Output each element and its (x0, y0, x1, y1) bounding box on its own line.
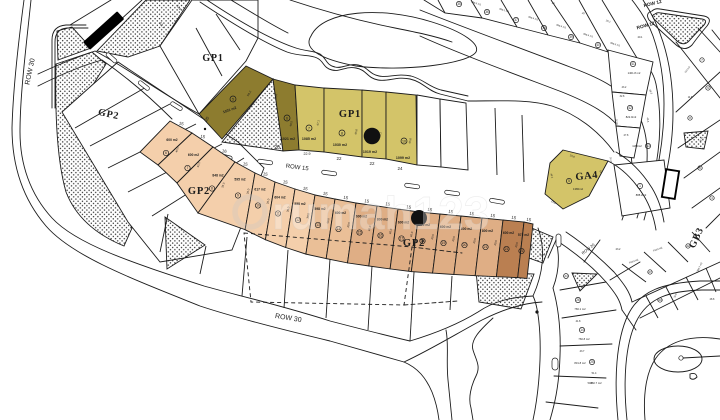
svg-text:10: 10 (256, 204, 260, 208)
svg-text:GP1: GP1 (339, 109, 361, 120)
svg-text:14: 14 (580, 328, 584, 332)
svg-text:22: 22 (336, 156, 342, 161)
svg-text:51.4: 51.4 (592, 372, 597, 375)
svg-text:21: 21 (484, 245, 488, 249)
svg-text:26: 26 (576, 298, 580, 302)
svg-text:35: 35 (457, 2, 461, 6)
svg-text:18: 18 (421, 239, 425, 243)
svg-text:24: 24 (397, 166, 403, 171)
svg-text:28.8: 28.8 (710, 298, 715, 301)
svg-text:1380m2: 1380m2 (573, 187, 584, 191)
svg-text:600 m2: 600 m2 (503, 231, 514, 235)
svg-text:848 m2: 848 m2 (212, 174, 223, 178)
svg-text:27: 27 (648, 270, 652, 274)
svg-text:1021 m2: 1021 m2 (281, 137, 295, 141)
svg-text:600 m2: 600 m2 (188, 153, 199, 157)
svg-text:6: 6 (165, 151, 167, 155)
svg-text:43: 43 (646, 144, 650, 148)
svg-text:21: 21 (520, 249, 524, 253)
svg-text:50.4: 50.4 (588, 382, 593, 385)
svg-text:1099 m2: 1099 m2 (396, 156, 410, 160)
svg-text:37: 37 (514, 18, 518, 22)
svg-text:8: 8 (341, 131, 343, 135)
svg-text:760.8 m2: 760.8 m2 (578, 337, 590, 341)
svg-text:20.1: 20.1 (638, 36, 643, 39)
svg-text:1085 m2: 1085 m2 (302, 137, 316, 141)
svg-text:572 m2: 572 m2 (518, 233, 529, 237)
svg-text:822.0m2: 822.0m2 (626, 115, 637, 119)
svg-text:21: 21 (505, 247, 509, 251)
svg-text:6: 6 (286, 116, 288, 120)
svg-text:9: 9 (237, 194, 239, 198)
svg-text:1: 1 (639, 184, 641, 188)
svg-text:39: 39 (569, 35, 573, 39)
svg-text:38: 38 (542, 26, 546, 30)
svg-text:24: 24 (564, 274, 568, 278)
svg-text:600 m2: 600 m2 (166, 138, 177, 142)
svg-text:19: 19 (442, 241, 446, 245)
svg-text:GP1: GP1 (202, 53, 223, 64)
svg-text:14.8: 14.8 (688, 97, 693, 99)
svg-text:1030 m2: 1030 m2 (333, 143, 347, 147)
svg-text:27.8: 27.8 (624, 134, 629, 137)
svg-text:25: 25 (590, 360, 594, 364)
svg-text:5: 5 (232, 97, 234, 101)
svg-text:43.7: 43.7 (580, 350, 585, 353)
svg-text:22: 22 (369, 161, 375, 166)
svg-text:32.8: 32.8 (620, 95, 625, 98)
svg-text:766.1 m2: 766.1 m2 (574, 307, 586, 311)
svg-text:595 m2: 595 m2 (234, 178, 245, 182)
svg-text:20: 20 (463, 243, 467, 247)
svg-text:36: 36 (485, 10, 489, 14)
svg-text:rumah123: rumah123 (272, 187, 489, 239)
svg-text:41: 41 (631, 62, 635, 66)
svg-text:22.9: 22.9 (304, 152, 311, 156)
svg-text:617 m2: 617 m2 (254, 188, 265, 192)
svg-text:5: 5 (568, 179, 570, 183)
svg-text:1182m2: 1182m2 (632, 144, 642, 148)
svg-text:20.5: 20.5 (540, 254, 545, 257)
svg-text:23.2: 23.2 (616, 248, 621, 251)
svg-text:7: 7 (187, 166, 189, 170)
svg-text:7: 7 (308, 126, 310, 130)
svg-text:40: 40 (596, 43, 600, 47)
svg-text:1019 m2: 1019 m2 (363, 150, 377, 154)
svg-text:10: 10 (402, 139, 406, 143)
svg-text:8: 8 (211, 187, 213, 191)
svg-text:42: 42 (628, 106, 632, 110)
svg-text:1401.8 m2: 1401.8 m2 (628, 71, 641, 75)
svg-text:20: 20 (274, 145, 280, 151)
svg-text:888.2m2: 888.2m2 (636, 193, 647, 197)
svg-text:831.8 m2: 831.8 m2 (574, 361, 586, 365)
svg-text:GP2: GP2 (188, 186, 210, 197)
svg-text:41.8: 41.8 (576, 320, 581, 323)
svg-text:43.2: 43.2 (622, 86, 627, 89)
